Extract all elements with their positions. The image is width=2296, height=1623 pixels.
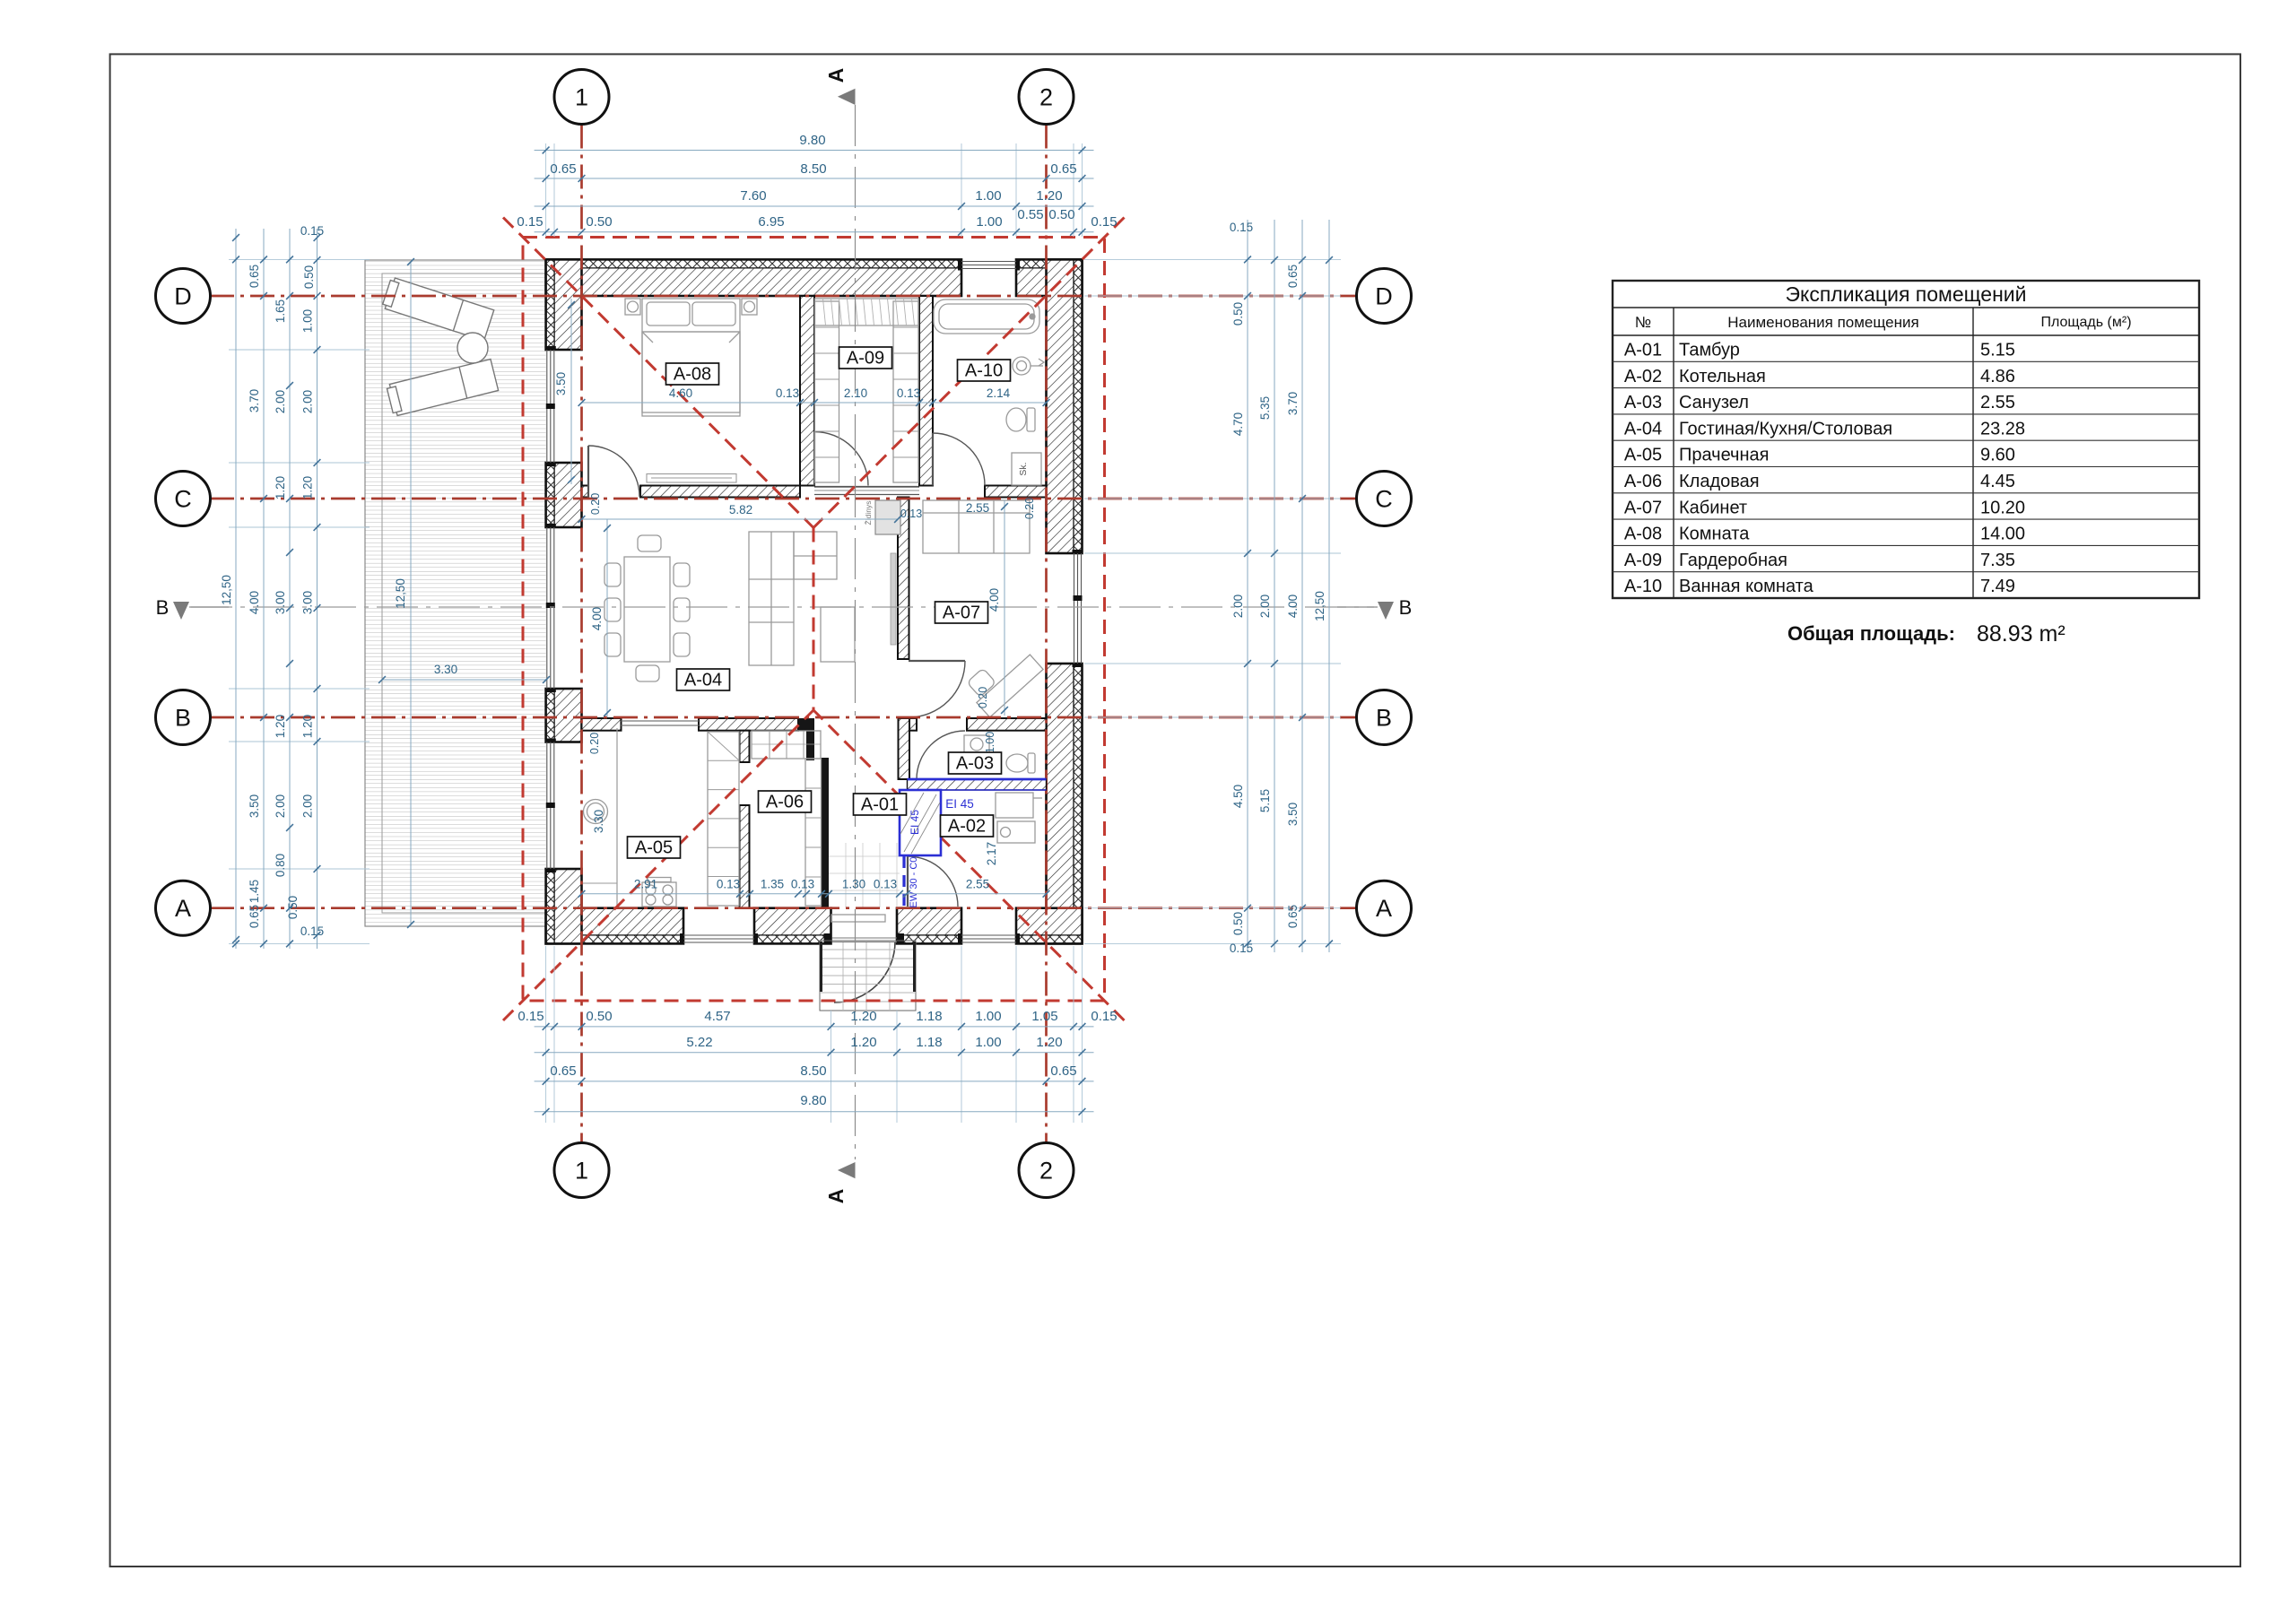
svg-text:A-06: A-06 (766, 793, 804, 812)
svg-text:№: № (1635, 314, 1651, 331)
svg-text:0.15: 0.15 (1091, 214, 1117, 230)
svg-text:A: A (824, 1189, 848, 1204)
svg-text:6.95: 6.95 (758, 214, 784, 230)
svg-text:3.30: 3.30 (592, 810, 605, 833)
svg-text:0.80: 0.80 (274, 854, 287, 877)
svg-text:2.14: 2.14 (987, 386, 1011, 400)
svg-text:5.22: 5.22 (686, 1035, 712, 1050)
svg-text:0.15: 0.15 (300, 924, 324, 938)
svg-text:3.50: 3.50 (248, 794, 261, 818)
svg-text:C: C (174, 486, 192, 513)
svg-text:Наименования помещения: Наименования помещения (1727, 314, 1918, 331)
svg-text:14.00: 14.00 (1980, 525, 2025, 544)
svg-text:0.65: 0.65 (248, 905, 261, 928)
svg-text:A-08: A-08 (674, 365, 711, 385)
svg-text:0.65: 0.65 (550, 1063, 576, 1079)
svg-text:0.50: 0.50 (1048, 207, 1074, 222)
svg-text:1.30: 1.30 (842, 878, 865, 891)
svg-text:3.70: 3.70 (248, 389, 261, 412)
svg-text:0.15: 0.15 (517, 1009, 544, 1024)
svg-text:23.28: 23.28 (1980, 419, 2025, 438)
svg-text:A-07: A-07 (1624, 498, 1662, 517)
svg-text:0.65: 0.65 (550, 161, 576, 177)
svg-text:A-04: A-04 (684, 671, 722, 690)
svg-text:A-09: A-09 (1624, 551, 1662, 570)
svg-text:A-02: A-02 (948, 817, 986, 837)
svg-text:1.18: 1.18 (916, 1009, 942, 1024)
svg-text:1.00: 1.00 (984, 732, 996, 753)
svg-text:2: 2 (1039, 1158, 1053, 1185)
svg-text:B: B (1376, 705, 1392, 732)
svg-text:A: A (1376, 895, 1392, 922)
svg-text:Ванная комната: Ванная комната (1679, 577, 1814, 596)
svg-text:0.50: 0.50 (1231, 912, 1245, 935)
svg-text:2.00: 2.00 (301, 390, 315, 413)
svg-text:4.00: 4.00 (1286, 595, 1300, 618)
svg-text:A-03: A-03 (1624, 393, 1662, 412)
svg-text:A-01: A-01 (861, 795, 899, 815)
svg-text:2.00: 2.00 (1258, 595, 1272, 618)
svg-text:Экспликация помещений: Экспликация помещений (1785, 282, 2026, 306)
svg-text:A-06: A-06 (1624, 472, 1662, 491)
svg-text:3.50: 3.50 (554, 372, 568, 395)
svg-text:12,50: 12,50 (220, 575, 233, 605)
svg-text:0.15: 0.15 (1230, 942, 1253, 955)
svg-text:Гардеробная: Гардеробная (1679, 551, 1787, 570)
svg-text:0.13: 0.13 (897, 386, 920, 400)
svg-text:1.20: 1.20 (274, 476, 287, 499)
svg-text:A-07: A-07 (943, 603, 980, 623)
svg-text:1.00: 1.00 (975, 188, 1001, 204)
svg-text:0.20: 0.20 (977, 687, 989, 708)
svg-text:0.50: 0.50 (586, 214, 612, 230)
svg-text:A: A (824, 68, 848, 83)
svg-text:5.15: 5.15 (1980, 341, 2015, 360)
svg-text:5.82: 5.82 (729, 503, 752, 516)
svg-text:Общая площадь:: Общая площадь: (1787, 622, 1955, 645)
svg-text:4.60: 4.60 (669, 386, 692, 400)
svg-text:10.20: 10.20 (1980, 498, 2025, 517)
svg-text:D: D (174, 283, 192, 310)
svg-text:3.00: 3.00 (301, 591, 315, 614)
svg-text:Židinys: Židinys (864, 501, 873, 525)
svg-text:1.20: 1.20 (301, 476, 315, 499)
svg-text:В: В (156, 596, 170, 619)
svg-text:1.00: 1.00 (975, 1035, 1001, 1050)
svg-text:0.20: 0.20 (1023, 498, 1036, 519)
svg-text:0.15: 0.15 (1230, 221, 1253, 234)
svg-text:0.65: 0.65 (1286, 905, 1300, 928)
svg-text:0.50: 0.50 (302, 265, 316, 289)
svg-text:0.65: 0.65 (1050, 161, 1076, 177)
svg-text:0.13: 0.13 (717, 878, 740, 891)
svg-text:2: 2 (1039, 84, 1053, 111)
svg-text:0.20: 0.20 (589, 493, 602, 515)
svg-text:2.17: 2.17 (985, 842, 998, 865)
svg-text:EI 45: EI 45 (909, 810, 921, 835)
svg-text:0.15: 0.15 (300, 224, 324, 238)
svg-text:1.05: 1.05 (1031, 1009, 1057, 1024)
svg-text:4.70: 4.70 (1231, 412, 1245, 436)
svg-text:A-02: A-02 (1624, 367, 1662, 386)
svg-text:0.50: 0.50 (286, 896, 300, 919)
svg-text:9.80: 9.80 (800, 1093, 826, 1108)
svg-text:1.00: 1.00 (976, 214, 1002, 230)
svg-text:2.55: 2.55 (966, 501, 989, 515)
svg-text:0.20: 0.20 (588, 733, 601, 754)
svg-text:A: A (175, 895, 191, 922)
svg-text:1.20: 1.20 (850, 1035, 876, 1050)
svg-text:0.50: 0.50 (1231, 302, 1245, 325)
svg-text:12,50: 12,50 (1313, 591, 1326, 621)
svg-text:3.30: 3.30 (434, 663, 457, 676)
svg-text:4.86: 4.86 (1980, 367, 2015, 386)
svg-text:2.00: 2.00 (1231, 595, 1245, 618)
svg-text:Кладовая: Кладовая (1679, 472, 1760, 491)
svg-text:3.70: 3.70 (1286, 392, 1300, 415)
svg-text:Кабинет: Кабинет (1679, 498, 1747, 517)
svg-text:Котельная: Котельная (1679, 367, 1766, 386)
svg-text:4.00: 4.00 (987, 588, 1001, 612)
svg-text:B: B (175, 705, 191, 732)
svg-text:A-04: A-04 (1624, 419, 1662, 438)
svg-text:A-08: A-08 (1624, 525, 1662, 544)
svg-text:A-10: A-10 (965, 361, 1003, 381)
svg-text:9.80: 9.80 (799, 133, 825, 148)
svg-text:Комната: Комната (1679, 525, 1750, 544)
svg-text:Прачечная: Прачечная (1679, 446, 1769, 465)
svg-text:7.60: 7.60 (740, 188, 766, 204)
svg-text:9.60: 9.60 (1980, 446, 2015, 465)
svg-text:A-05: A-05 (635, 838, 673, 858)
svg-text:2.55: 2.55 (1980, 393, 2015, 412)
svg-text:1.00: 1.00 (301, 309, 315, 333)
svg-text:Гостиная/Кухня/Столовая: Гостиная/Кухня/Столовая (1679, 419, 1892, 438)
svg-text:4.57: 4.57 (704, 1009, 730, 1024)
svg-text:A-01: A-01 (1624, 341, 1662, 360)
svg-text:0.13: 0.13 (776, 386, 799, 400)
svg-text:2.91: 2.91 (634, 878, 657, 891)
svg-text:1.20: 1.20 (301, 715, 315, 738)
svg-text:0.65: 0.65 (248, 265, 261, 288)
svg-text:2.00: 2.00 (301, 794, 315, 818)
svg-text:8.50: 8.50 (800, 161, 826, 177)
svg-text:0.15: 0.15 (517, 214, 543, 230)
svg-text:EW 30 - C0: EW 30 - C0 (909, 857, 919, 908)
svg-text:0.65: 0.65 (1050, 1063, 1076, 1079)
svg-text:Тамбур: Тамбур (1679, 341, 1740, 360)
svg-text:7.49: 7.49 (1980, 577, 2015, 596)
svg-text:4.50: 4.50 (1231, 785, 1245, 808)
svg-text:8.50: 8.50 (800, 1063, 826, 1079)
svg-text:Санузел: Санузел (1679, 393, 1749, 412)
svg-text:1: 1 (575, 84, 588, 111)
svg-text:0.13: 0.13 (900, 508, 922, 520)
svg-text:4.45: 4.45 (1980, 472, 2015, 491)
svg-text:1: 1 (575, 1158, 588, 1185)
svg-text:В: В (1399, 596, 1413, 619)
svg-text:A-10: A-10 (1624, 577, 1662, 596)
svg-text:3.50: 3.50 (1286, 803, 1300, 826)
svg-text:1.20: 1.20 (1036, 1035, 1062, 1050)
svg-text:0.55: 0.55 (1017, 207, 1043, 222)
svg-text:2.10: 2.10 (844, 386, 867, 400)
svg-text:5.35: 5.35 (1258, 396, 1272, 420)
svg-text:3.00: 3.00 (274, 591, 287, 614)
svg-text:A-05: A-05 (1624, 446, 1662, 465)
svg-text:88.93 m²: 88.93 m² (1977, 621, 2066, 647)
svg-text:1.00: 1.00 (975, 1009, 1001, 1024)
svg-text:0.13: 0.13 (874, 878, 897, 891)
svg-text:0.13: 0.13 (791, 878, 814, 891)
svg-text:4.00: 4.00 (248, 591, 261, 614)
svg-text:EI 45: EI 45 (945, 797, 974, 811)
svg-text:Площадь (м²): Площадь (м²) (2040, 315, 2131, 330)
svg-text:0.50: 0.50 (586, 1009, 612, 1024)
svg-text:D: D (1375, 283, 1393, 310)
svg-text:A-09: A-09 (847, 349, 884, 369)
svg-text:12,50: 12,50 (394, 578, 407, 609)
svg-text:1.65: 1.65 (274, 299, 287, 323)
svg-text:1.18: 1.18 (916, 1035, 942, 1050)
svg-text:Sk.: Sk. (1018, 462, 1029, 475)
svg-text:7.35: 7.35 (1980, 551, 2015, 570)
svg-text:1.20: 1.20 (850, 1009, 876, 1024)
svg-text:2.00: 2.00 (274, 794, 287, 818)
svg-text:C: C (1375, 486, 1393, 513)
svg-text:0.15: 0.15 (1091, 1009, 1117, 1024)
svg-text:1.20: 1.20 (1036, 188, 1062, 204)
svg-text:5.15: 5.15 (1258, 789, 1272, 812)
svg-text:0.65: 0.65 (1286, 265, 1300, 288)
svg-text:2.55: 2.55 (966, 878, 989, 891)
svg-text:1.35: 1.35 (761, 878, 784, 891)
svg-text:1.45: 1.45 (248, 880, 261, 903)
svg-text:A-03: A-03 (956, 754, 994, 774)
svg-text:4.00: 4.00 (590, 607, 604, 630)
svg-text:1.20: 1.20 (274, 715, 287, 738)
svg-text:2.00: 2.00 (274, 390, 287, 413)
